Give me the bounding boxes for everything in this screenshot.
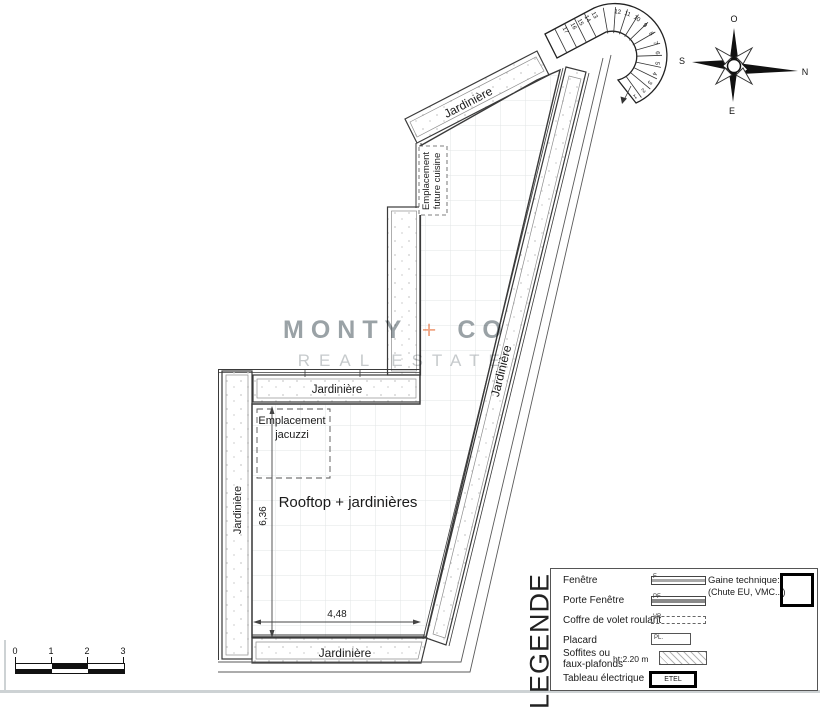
label-rooftop: Rooftop + jardinières <box>279 494 418 511</box>
label-jardiniere-bottom: Jardinière <box>319 646 372 660</box>
legend: Fenêtre Porte Fenêtre Coffre de volet ro… <box>550 568 818 691</box>
label-jacuzzi-2: jacuzzi <box>274 429 309 441</box>
scale-tick-1: 1 <box>48 646 53 656</box>
svg-text:6,36: 6,36 <box>258 506 269 526</box>
floor-plan-sheet: { "watermark": { "brand_left": "MONTY", … <box>0 0 820 698</box>
scale-tick-3: 3 <box>120 646 125 656</box>
svg-text:4,48: 4,48 <box>327 609 347 620</box>
legend-item-soffites-1: Soffites ou <box>563 648 610 659</box>
legend-item-tableau: Tableau électrique <box>563 673 644 684</box>
compass-label-right: N <box>802 67 809 77</box>
legend-item-placard: Placard <box>563 635 597 646</box>
watermark-plus-icon: + <box>422 316 444 344</box>
electrical-panel-symbol: ETEL <box>649 671 697 688</box>
compass-label-bottom: E <box>729 106 735 116</box>
watermark: MONTY + CO REAL ESTATE <box>283 316 509 371</box>
watermark-brand: MONTY + CO <box>283 316 509 345</box>
legend-item-porte-fenetre: Porte Fenêtre <box>563 595 624 606</box>
soffit-hatch-symbol <box>659 651 707 665</box>
scale-bar: 0 1 2 3 <box>0 644 140 684</box>
closet-symbol: PL. <box>651 633 691 645</box>
compass-rose: O N E S <box>679 14 808 116</box>
french-door-symbol: PF <box>651 596 706 606</box>
legend-item-coffre: Coffre de volet roulant <box>563 615 661 626</box>
label-cuisine-2: future cuisine <box>432 153 443 210</box>
scale-tick-0: 0 <box>12 646 17 656</box>
label-cuisine-1: Emplacement <box>421 152 432 210</box>
watermark-brand-right: CO <box>457 316 509 344</box>
compass-label-top: O <box>730 14 737 24</box>
compass-label-left: S <box>679 56 685 66</box>
legend-item-fenetre: Fenêtre <box>563 575 597 586</box>
legend-gaine-1: Gaine technique: <box>708 575 780 586</box>
label-jardiniere-horizontal: Jardinière <box>312 384 363 396</box>
label-jardiniere-left: Jardinière <box>232 486 244 534</box>
scale-tick-2: 2 <box>84 646 89 656</box>
legend-gaine-2: (Chute EU, VMC...) <box>708 587 786 597</box>
watermark-brand-left: MONTY <box>283 316 408 344</box>
watermark-subtitle: REAL ESTATE <box>298 351 509 371</box>
window-symbol: F <box>651 576 706 585</box>
roller-shutter-symbol: VR <box>651 616 706 624</box>
label-jacuzzi-1: Emplacement <box>258 415 325 427</box>
scale-bar-segments <box>15 663 125 674</box>
legend-soffites-height: ht:2.20 m <box>613 654 648 664</box>
technical-duct-symbol <box>780 573 814 607</box>
